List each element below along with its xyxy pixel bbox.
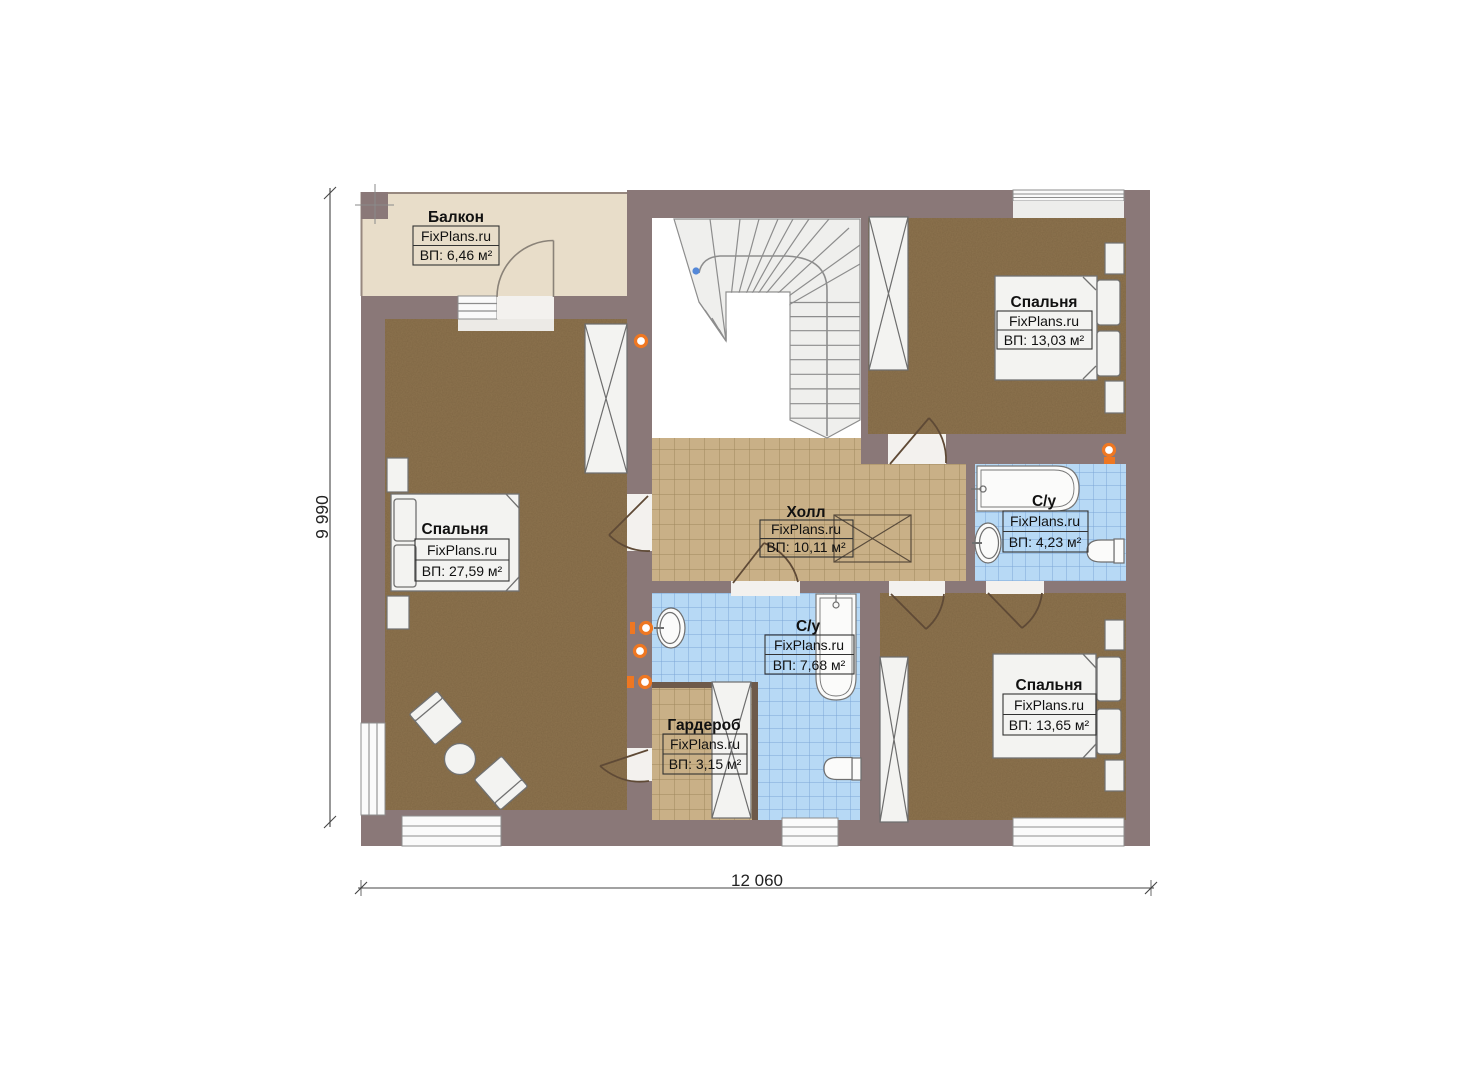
svg-text:ВП: 27,59 м²: ВП: 27,59 м² bbox=[422, 563, 503, 579]
svg-text:FixPlans.ru: FixPlans.ru bbox=[427, 542, 497, 558]
svg-text:ВП: 13,03 м²: ВП: 13,03 м² bbox=[1004, 332, 1085, 348]
svg-text:FixPlans.ru: FixPlans.ru bbox=[774, 637, 844, 653]
svg-text:Холл: Холл bbox=[787, 504, 826, 521]
svg-text:ВП: 7,68 м²: ВП: 7,68 м² bbox=[773, 657, 846, 673]
svg-text:ВП: 10,11 м²: ВП: 10,11 м² bbox=[766, 539, 846, 555]
svg-text:FixPlans.ru: FixPlans.ru bbox=[1014, 697, 1084, 713]
svg-text:Гардероб: Гардероб bbox=[667, 717, 740, 734]
svg-text:FixPlans.ru: FixPlans.ru bbox=[1009, 313, 1079, 329]
svg-text:FixPlans.ru: FixPlans.ru bbox=[670, 736, 740, 752]
svg-text:FixPlans.ru: FixPlans.ru bbox=[771, 521, 841, 537]
svg-text:Балкон: Балкон bbox=[428, 209, 484, 226]
svg-text:FixPlans.ru: FixPlans.ru bbox=[421, 228, 491, 244]
svg-text:Спальня: Спальня bbox=[422, 521, 489, 538]
svg-text:ВП: 3,15 м²: ВП: 3,15 м² bbox=[669, 756, 742, 772]
svg-text:С/у: С/у bbox=[796, 618, 821, 635]
svg-text:12 060: 12 060 bbox=[731, 871, 783, 890]
svg-text:ВП: 13,65 м²: ВП: 13,65 м² bbox=[1009, 717, 1090, 733]
svg-text:ВП: 6,46 м²: ВП: 6,46 м² bbox=[420, 247, 493, 263]
svg-text:ВП: 4,23 м²: ВП: 4,23 м² bbox=[1009, 534, 1082, 550]
svg-text:Спальня: Спальня bbox=[1016, 677, 1083, 694]
svg-text:9 990: 9 990 bbox=[312, 495, 332, 539]
svg-text:Спальня: Спальня bbox=[1011, 294, 1078, 311]
svg-text:FixPlans.ru: FixPlans.ru bbox=[1010, 513, 1080, 529]
svg-text:С/у: С/у bbox=[1032, 493, 1057, 510]
